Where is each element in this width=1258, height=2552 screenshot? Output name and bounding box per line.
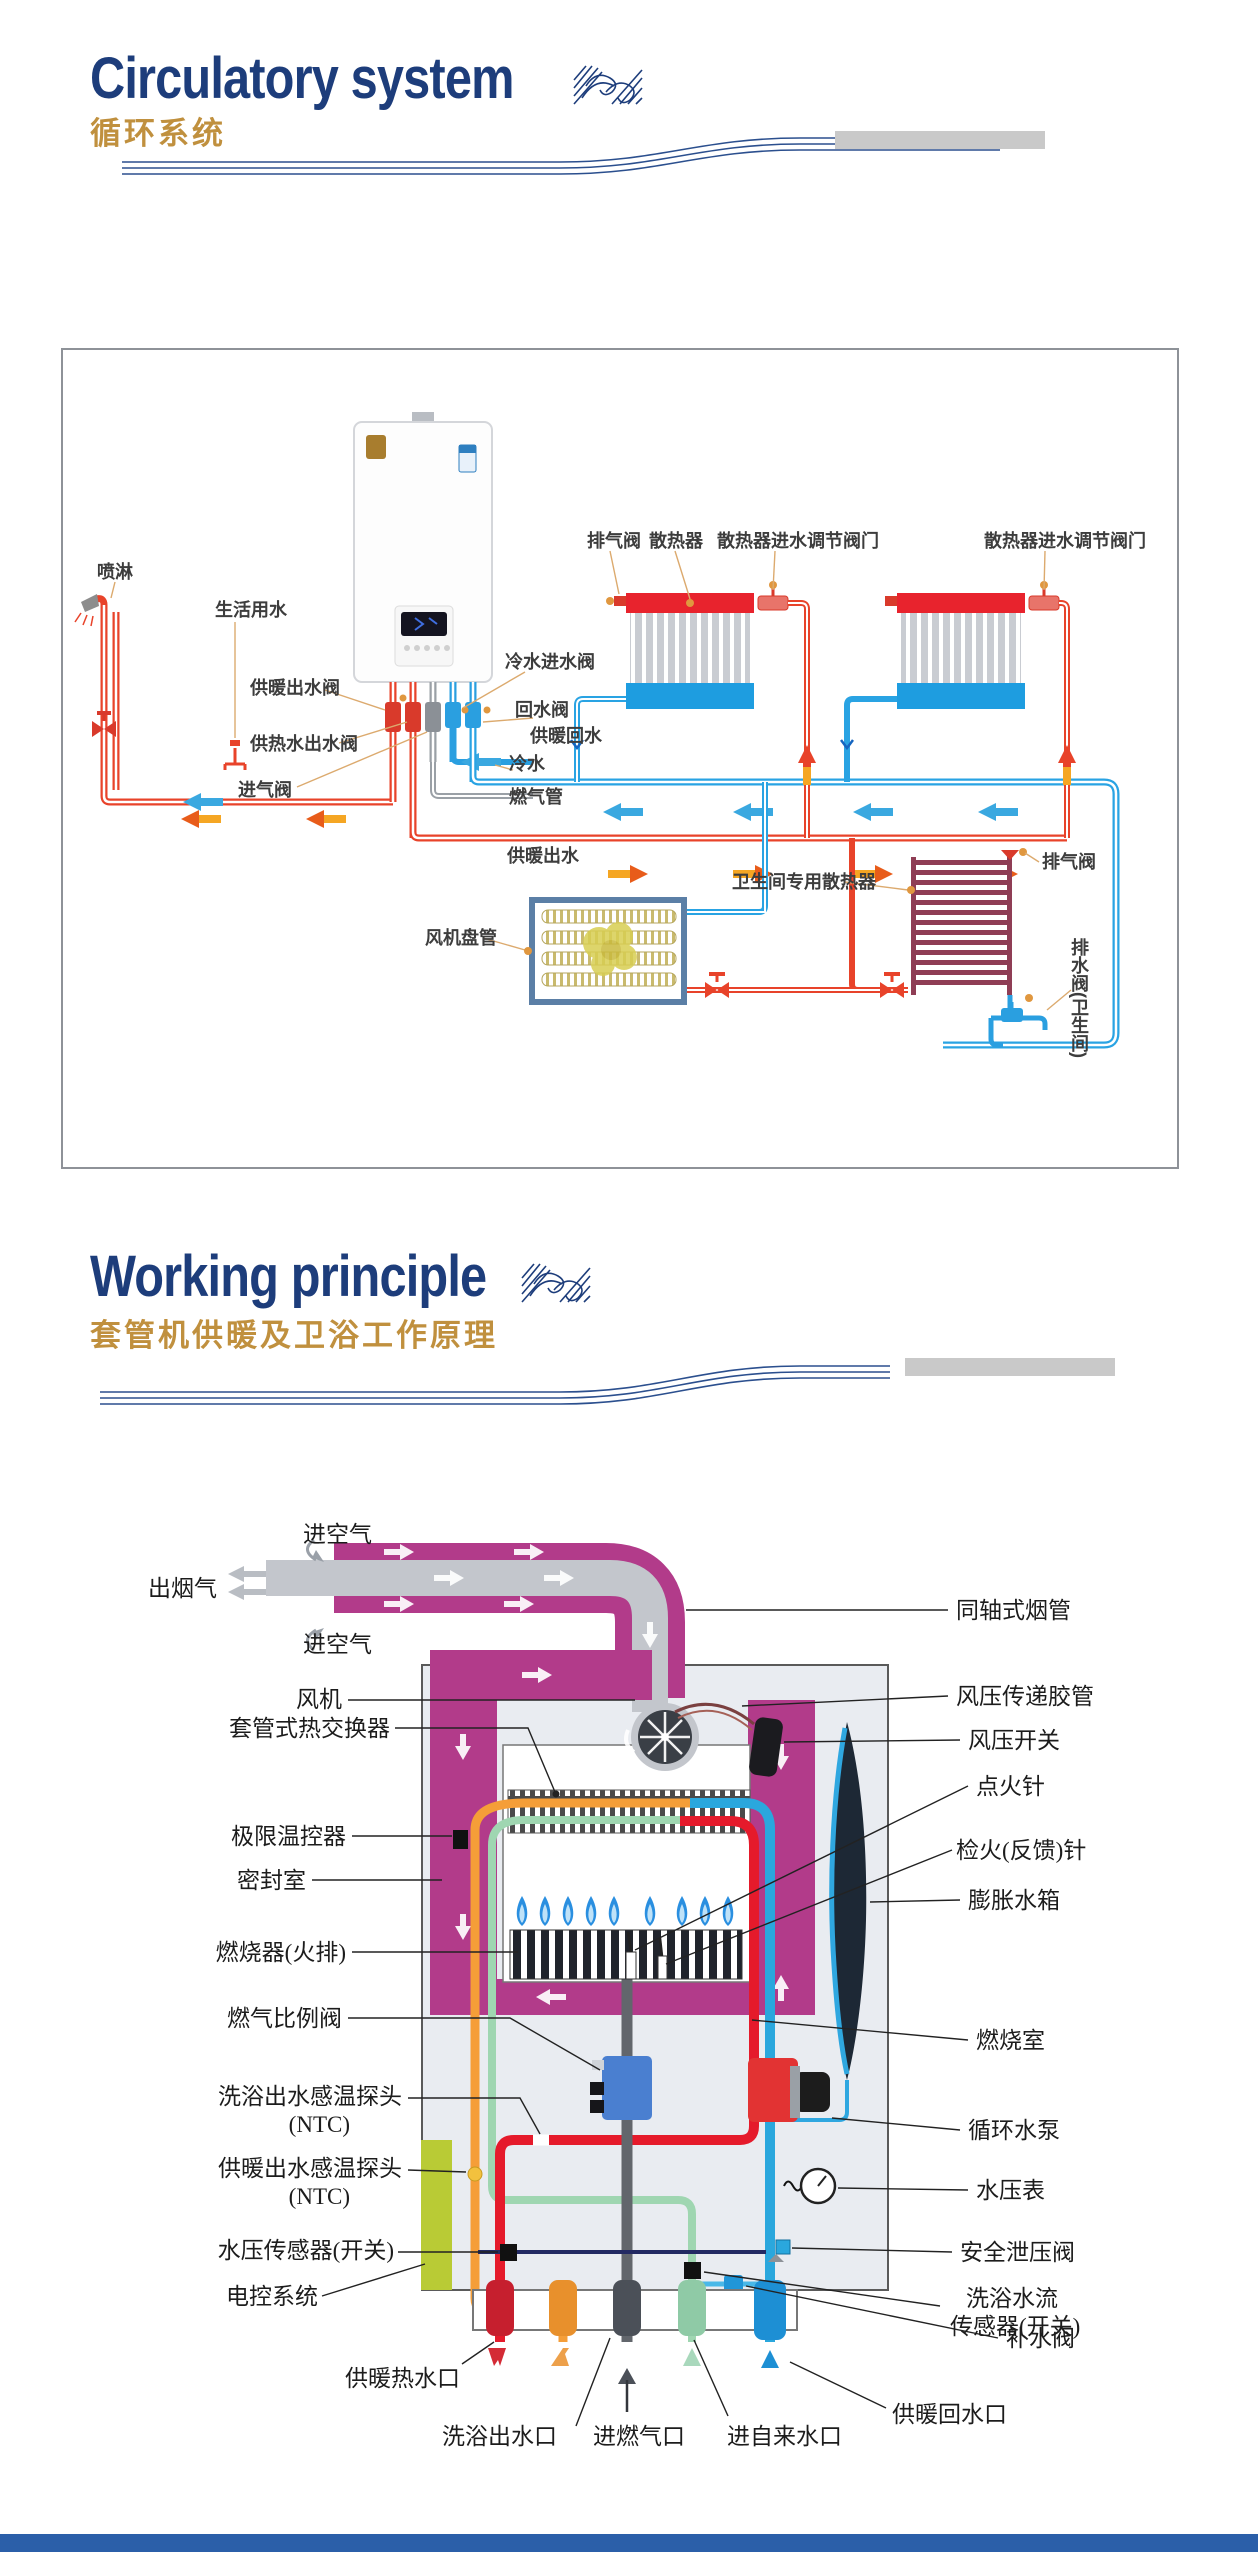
label-combustion-chamber: 燃烧室 bbox=[976, 2028, 1045, 2053]
label-flue-out: 出烟气 bbox=[148, 1576, 217, 1601]
bath-flow-sensor bbox=[684, 2262, 701, 2279]
label-hotwater-outlet-valve: 供热水出水阀 bbox=[249, 733, 358, 754]
shower-head-icon bbox=[75, 594, 99, 626]
label-pressure-gauge: 水压表 bbox=[976, 2178, 1045, 2203]
label-heat-ntc2: (NTC) bbox=[289, 2184, 350, 2209]
label-sealed-chamber: 密封室 bbox=[237, 1868, 306, 1893]
section2-wave-lines bbox=[0, 1340, 1100, 1415]
domestic-water-tap bbox=[225, 740, 245, 770]
label-air-in-bottom: 进空气 bbox=[303, 1632, 372, 1657]
label-heat-ntc: 供暖出水感温探头 bbox=[218, 2156, 402, 2181]
label-air-in-top: 进空气 bbox=[303, 1522, 372, 1547]
label-cold-water: 冷水 bbox=[509, 753, 546, 774]
label-coaxial-hx: 套管式热交换器 bbox=[229, 1716, 390, 1741]
label-circulation-pump: 循环水泵 bbox=[968, 2118, 1060, 2143]
label-electric-control: 电控系统 bbox=[226, 2284, 318, 2309]
label-gas-pipe: 燃气管 bbox=[509, 786, 563, 807]
return-flow-arrows bbox=[603, 803, 1018, 821]
label-coldwater-inlet-valve: 冷水进水阀 bbox=[505, 651, 595, 672]
label-domestic-water: 生活用水 bbox=[215, 599, 288, 620]
label-radiator-reg-valve-B: 散热器进水调节阀门 bbox=[984, 530, 1146, 551]
label-fan: 风机 bbox=[296, 1687, 342, 1712]
circulatory-system-diagram: 喷淋 生活用水 供暖出水阀 供热水出水阀 进气阀 冷水进水阀 回水阀 供暖回水 … bbox=[61, 348, 1179, 1169]
water-pressure-sensor bbox=[500, 2244, 517, 2261]
radiator-B bbox=[841, 581, 1076, 838]
section1-title: Circulatory system bbox=[90, 50, 594, 108]
label-heating-return: 供暖回水 bbox=[529, 725, 603, 746]
flow-arrow bbox=[183, 793, 223, 811]
label-gas-inlet-valve: 进气阀 bbox=[238, 779, 292, 800]
label-heating-out-port: 供暖热水口 bbox=[345, 2366, 460, 2391]
brand-logo bbox=[366, 435, 386, 459]
label-vent-valve-bathroom: 排气阀 bbox=[1042, 851, 1096, 872]
shower-pipes bbox=[96, 599, 393, 802]
gas-proportional-valve bbox=[590, 2056, 652, 2120]
section1-gray-bar bbox=[835, 131, 1045, 149]
label-return-valve: 回水阀 bbox=[515, 699, 569, 720]
label-bath-ntc2: (NTC) bbox=[289, 2112, 350, 2137]
section1-wave-lines bbox=[0, 120, 1100, 185]
label-expansion-tank: 膨胀水箱 bbox=[968, 1888, 1060, 1913]
electric-control-box bbox=[421, 2140, 452, 2290]
label-shower: 喷淋 bbox=[97, 561, 133, 582]
gas-inlet-valve bbox=[425, 702, 441, 732]
label-burner: 燃烧器(火排) bbox=[216, 1940, 346, 1965]
fan-coil-valves bbox=[705, 972, 904, 998]
label-refill-valve: 补水阀 bbox=[1006, 2326, 1075, 2351]
label-pressure-sensor: 水压传感器(开关) bbox=[218, 2238, 394, 2263]
label-heating-supply: 供暖出水 bbox=[506, 845, 580, 866]
label-relief-valve: 安全泄压阀 bbox=[960, 2240, 1075, 2265]
bottom-bar bbox=[0, 2534, 1258, 2552]
label-coaxial-flue: 同轴式烟管 bbox=[956, 1598, 1071, 1623]
label-drain-valve-bathroom: 排水阀(卫生间) bbox=[1069, 937, 1089, 1058]
heating-supply-main bbox=[413, 832, 1067, 838]
label-radiator: 散热器 bbox=[649, 530, 704, 551]
label-pressure-switch: 风压开关 bbox=[968, 1728, 1060, 1753]
hotwater-outlet-valve bbox=[405, 702, 421, 732]
working-principle-diagram: 进空气 出烟气 进空气 风机 套管式热交换器 极限温控器 密封室 燃烧器(火排)… bbox=[90, 1500, 1258, 2505]
label-ignition-needle: 点火针 bbox=[976, 1774, 1045, 1799]
fan-coil-unit bbox=[532, 900, 684, 1002]
heat-exchanger bbox=[508, 1790, 750, 1833]
label-pressure-hose: 风压传递胶管 bbox=[956, 1684, 1094, 1709]
label-radiator-reg-valve-A: 散热器进水调节阀门 bbox=[717, 530, 879, 551]
wave-crest-icon bbox=[572, 58, 644, 113]
boiler-unit bbox=[354, 412, 492, 682]
coldwater-inlet-valve bbox=[445, 702, 461, 728]
manual-page: { "page": { "accent_navy": "#1d3d7b", "a… bbox=[0, 0, 1258, 2552]
label-gas-in-port: 进燃气口 bbox=[593, 2424, 685, 2449]
label-heating-outlet-valve: 供暖出水阀 bbox=[249, 677, 340, 698]
label-heating-return-port: 供暖回水口 bbox=[892, 2402, 1007, 2427]
section2-title: Working principle bbox=[90, 1248, 562, 1306]
label-tapwater-in-port: 进自来水口 bbox=[727, 2424, 842, 2449]
label-vent-valve-A: 排气阀 bbox=[587, 530, 641, 551]
bathroom-drain bbox=[991, 994, 1045, 1045]
bottom-manifold bbox=[473, 2280, 797, 2412]
label-limit-thermostat: 极限温控器 bbox=[231, 1824, 346, 1849]
section2-gray-bar bbox=[905, 1358, 1115, 1376]
label-flow-sensor-1: 洗浴水流 bbox=[966, 2286, 1058, 2311]
label-bathroom-radiator: 卫生间专用散热器 bbox=[732, 871, 877, 892]
limit-thermostat bbox=[453, 1830, 468, 1849]
shower-flow-arrows bbox=[181, 810, 346, 828]
label-bath-out-port: 洗浴出水口 bbox=[442, 2424, 557, 2449]
radiator-A bbox=[571, 581, 816, 838]
label-flame-needle: 检火(反馈)针 bbox=[956, 1838, 1086, 1863]
bathroom-radiator bbox=[911, 848, 1027, 995]
label-bath-ntc: 洗浴出水感温探头 bbox=[218, 2084, 402, 2109]
label-fan-coil: 风机盘管 bbox=[425, 927, 497, 948]
label-gas-prop-valve: 燃气比例阀 bbox=[227, 2006, 342, 2031]
wave-crest-icon-2 bbox=[520, 1256, 592, 1311]
